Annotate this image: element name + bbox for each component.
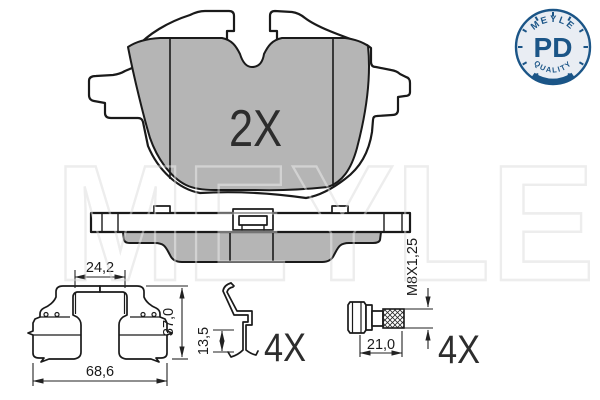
screw-quantity-label: 4X (438, 328, 480, 372)
clip-quantity-label: 4X (264, 326, 306, 370)
dim-screw-length: 21,0 (367, 337, 395, 353)
dim-clip-height: 13,5 (196, 327, 212, 355)
brake-pad-technical-drawing: MEYLE 2X (0, 0, 600, 400)
meyle-pd-badge: MEYLE PD QUALITY (516, 10, 590, 84)
drawing-svg: MEYLE 2X (0, 0, 600, 400)
watermark-overlay: MEYLE (55, 131, 595, 315)
dim-overall-width: 68,6 (86, 364, 114, 380)
badge-code-text: PD (534, 32, 573, 63)
spring-dimple (44, 313, 48, 317)
